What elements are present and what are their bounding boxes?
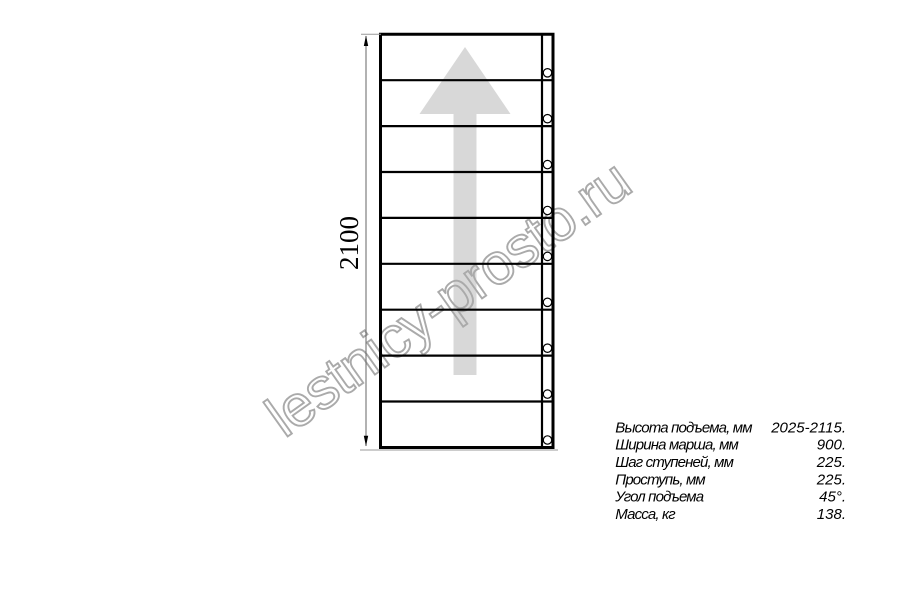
svg-text:Угол подъема: Угол подъема [614,489,703,506]
svg-text:Шаг ступеней, мм: Шаг ступеней, мм [615,454,733,471]
svg-text:Проступь, мм: Проступь, мм [615,471,705,488]
svg-text:45°.: 45°. [819,489,846,506]
svg-text:138.: 138. [817,506,846,523]
svg-text:900.: 900. [817,437,846,454]
svg-text:2025-2115.: 2025-2115. [770,419,846,436]
svg-text:Масса, кг: Масса, кг [615,506,676,523]
svg-text:225.: 225. [816,454,846,471]
svg-text:Высота подъема, мм: Высота подъема, мм [615,419,752,436]
svg-text:2100: 2100 [334,216,364,270]
svg-text:Ширина марша, мм: Ширина марша, мм [615,437,738,454]
svg-text:225.: 225. [816,471,846,488]
